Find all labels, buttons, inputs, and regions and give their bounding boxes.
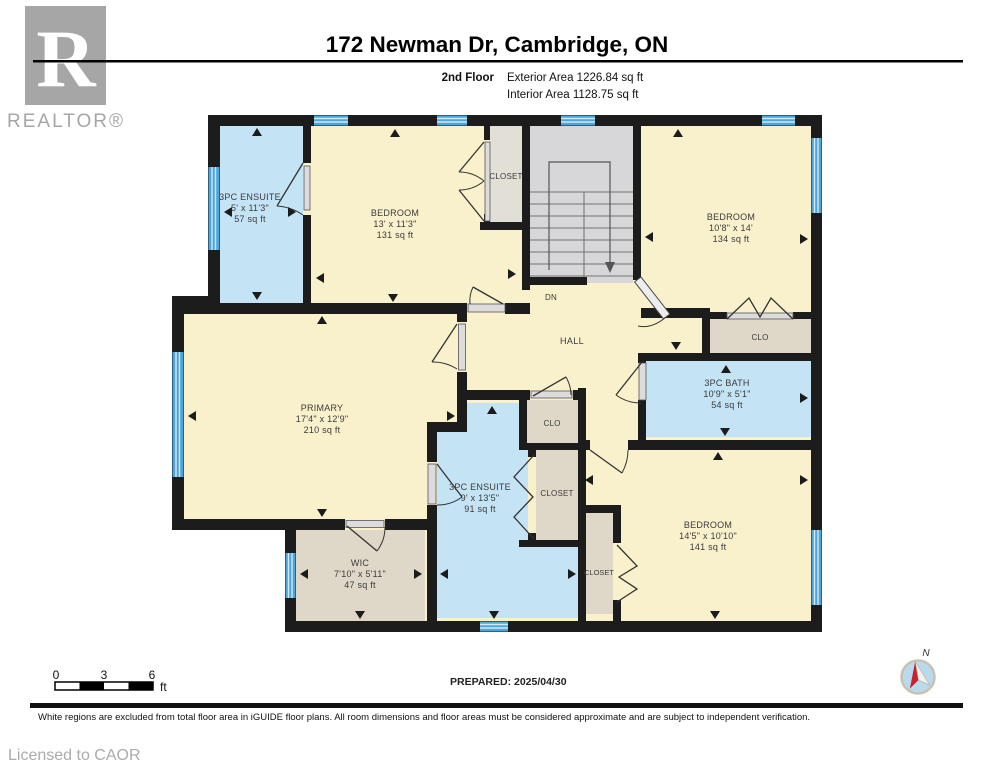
- label-hall: HALL: [560, 336, 584, 346]
- footer-rule: [30, 703, 963, 708]
- svg-text:141 sq ft: 141 sq ft: [690, 542, 727, 552]
- window-top-stairs: [561, 116, 595, 126]
- window-left-wic: [286, 553, 296, 598]
- svg-text:7'10" x 5'11": 7'10" x 5'11": [334, 569, 386, 579]
- prepared-date: PREPARED: 2025/04/30: [450, 676, 567, 688]
- window-right-lower: [812, 530, 822, 605]
- floor-label: 2nd Floor: [442, 72, 495, 84]
- svg-text:3PC ENSUITE: 3PC ENSUITE: [219, 192, 281, 202]
- scale-bar: 0 3 6 ft: [53, 668, 168, 694]
- scale-6: 6: [149, 668, 156, 682]
- label-dn: DN: [545, 293, 557, 302]
- svg-text:13' x 11'3": 13' x 11'3": [373, 219, 416, 229]
- svg-text:PRIMARY: PRIMARY: [301, 403, 344, 413]
- svg-text:10'8" x 14': 10'8" x 14': [709, 223, 753, 233]
- svg-text:3PC ENSUITE: 3PC ENSUITE: [449, 482, 511, 492]
- page-title: 172 Newman Dr, Cambridge, ON: [326, 32, 669, 57]
- svg-text:10'9" x 5'1": 10'9" x 5'1": [703, 389, 750, 399]
- svg-text:47 sq ft: 47 sq ft: [344, 580, 376, 590]
- licensed-text: Licensed to CAOR: [8, 747, 141, 764]
- svg-text:BEDROOM: BEDROOM: [371, 208, 419, 218]
- svg-text:9' x 13'5": 9' x 13'5": [461, 493, 500, 503]
- compass-north-label: N: [922, 648, 930, 659]
- floorplan-page: R REALTOR® 172 Newman Dr, Cambridge, ON …: [0, 0, 995, 768]
- exterior-area-label: Exterior Area 1226.84 sq ft: [507, 72, 644, 84]
- window-left-primary: [173, 352, 184, 477]
- label-clo-right: CLO: [751, 333, 768, 342]
- svg-text:91 sq ft: 91 sq ft: [464, 504, 496, 514]
- label-closet-mid: CLOSET: [540, 489, 573, 498]
- svg-text:WIC: WIC: [351, 558, 369, 568]
- interior-area-label: Interior Area 1128.75 sq ft: [507, 89, 639, 101]
- svg-text:5' x 11'3": 5' x 11'3": [231, 203, 269, 213]
- window-bottom: [480, 622, 508, 632]
- svg-text:131 sq ft: 131 sq ft: [377, 230, 414, 240]
- label-closet-bottom: CLOSET: [584, 568, 614, 577]
- label-clo-small: CLO: [543, 419, 560, 428]
- svg-text:BEDROOM: BEDROOM: [684, 520, 732, 530]
- svg-text:BEDROOM: BEDROOM: [707, 212, 755, 222]
- label-bedroom-tl: BEDROOM 13' x 11'3" 131 sq ft: [371, 208, 419, 240]
- window-top-3: [762, 116, 795, 126]
- compass: N: [902, 648, 935, 694]
- svg-text:210 sq ft: 210 sq ft: [304, 425, 341, 435]
- label-bedroom-tr: BEDROOM 10'8" x 14' 134 sq ft: [707, 212, 755, 244]
- disclaimer-text: White regions are excluded from total fl…: [38, 712, 810, 723]
- svg-text:17'4" x 12'9": 17'4" x 12'9": [296, 414, 349, 424]
- svg-text:3PC BATH: 3PC BATH: [704, 378, 749, 388]
- scale-3: 3: [101, 668, 108, 682]
- room-closet-bottom: [586, 513, 613, 614]
- window-top-1: [314, 116, 348, 126]
- scale-unit: ft: [160, 680, 167, 694]
- floorplan-canvas: R REALTOR® 172 Newman Dr, Cambridge, ON …: [0, 0, 995, 768]
- window-top-2: [437, 116, 467, 126]
- header-rule: [33, 60, 963, 63]
- realtor-logo-r: R: [36, 13, 96, 104]
- window-right-upper: [812, 138, 822, 213]
- realtor-wordmark: REALTOR®: [7, 111, 125, 132]
- realtor-logo: R REALTOR®: [7, 6, 125, 132]
- window-left-ensuite: [209, 167, 220, 250]
- svg-text:57 sq ft: 57 sq ft: [234, 214, 266, 224]
- svg-text:54 sq ft: 54 sq ft: [711, 400, 743, 410]
- svg-text:14'5" x 10'10": 14'5" x 10'10": [679, 531, 737, 541]
- label-closet-top: CLOSET: [489, 172, 522, 181]
- svg-text:134 sq ft: 134 sq ft: [713, 234, 750, 244]
- scale-0: 0: [53, 668, 60, 682]
